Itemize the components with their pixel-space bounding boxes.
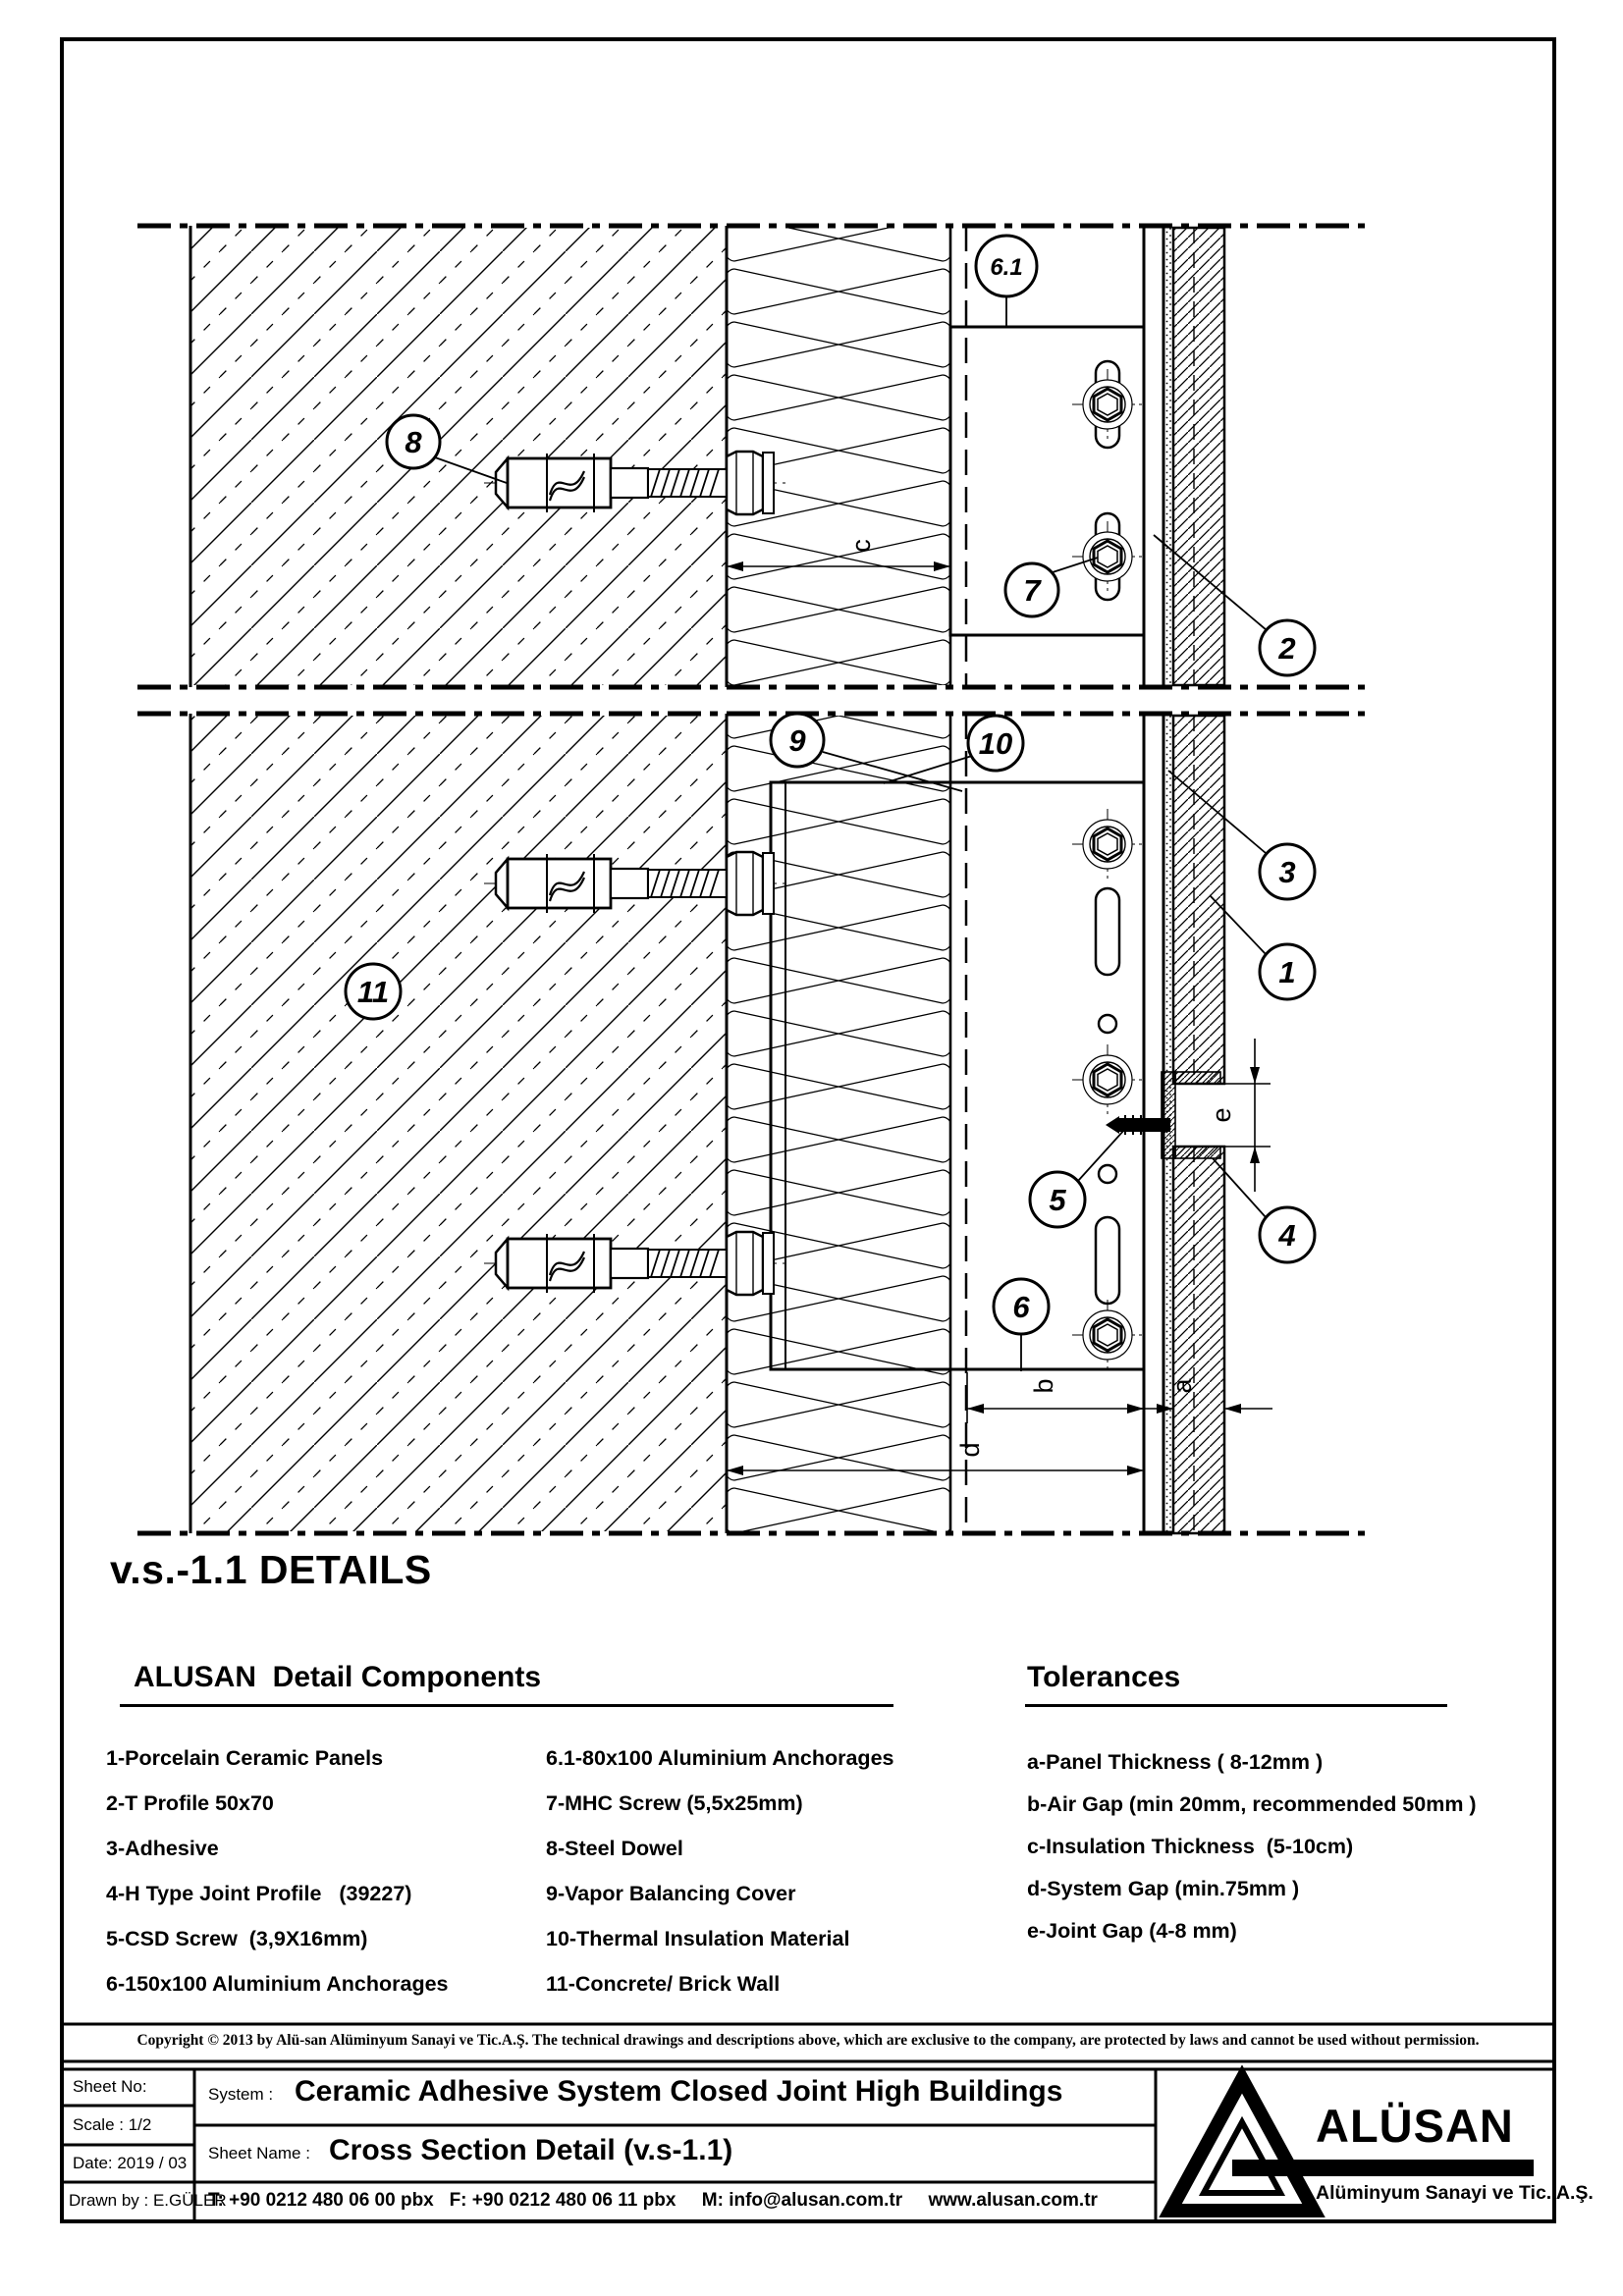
component-item: 9-Vapor Balancing Cover	[546, 1871, 893, 1916]
callout-4: 4	[1277, 1218, 1295, 1253]
component-item: 2-T Profile 50x70	[106, 1781, 449, 1826]
sheet-name-label: Sheet Name :	[208, 2144, 310, 2163]
callout-10: 10	[979, 726, 1012, 761]
svg-text:e: e	[1207, 1107, 1236, 1122]
components-underline	[120, 1704, 893, 1707]
tolerances-underline	[1025, 1704, 1447, 1707]
component-item: 7-MHC Screw (5,5x25mm)	[546, 1781, 893, 1826]
component-item: 1-Porcelain Ceramic Panels	[106, 1735, 449, 1781]
callout-3: 3	[1278, 855, 1295, 889]
components-title: ALUSAN Detail Components	[134, 1661, 541, 1694]
component-item: 4-H Type Joint Profile (39227)	[106, 1871, 449, 1916]
tolerance-item: c-Insulation Thickness (5-10cm)	[1027, 1826, 1477, 1868]
tolerances-title: Tolerances	[1027, 1661, 1180, 1694]
callout-11: 11	[357, 975, 389, 1009]
ceramic-panel	[1173, 228, 1224, 1533]
svg-text:a: a	[1167, 1378, 1197, 1394]
svg-text:b: b	[1029, 1378, 1058, 1393]
components-column-2: 6.1-80x100 Aluminium Anchorages 7-MHC Sc…	[546, 1735, 893, 2006]
callout-6: 6	[1012, 1290, 1030, 1324]
callout-7: 7	[1023, 573, 1042, 608]
svg-text:d: d	[955, 1442, 985, 1457]
callout-2: 2	[1277, 631, 1295, 666]
tolerance-item: d-System Gap (min.75mm )	[1027, 1868, 1477, 1910]
tolerances-list: a-Panel Thickness ( 8-12mm ) b-Air Gap (…	[1027, 1741, 1477, 1952]
drawn-by-value: Drawn by : E.GÜLER	[69, 2191, 227, 2211]
sheet-name-value: Cross Section Detail (v.s-1.1)	[329, 2134, 732, 2167]
dimension-b: b	[967, 1372, 1144, 1423]
callout-5: 5	[1049, 1183, 1066, 1217]
adhesive-layer	[1164, 228, 1173, 1531]
callout-6.1: 6.1	[990, 254, 1022, 281]
tolerance-item: a-Panel Thickness ( 8-12mm )	[1027, 1741, 1477, 1784]
component-item: 10-Thermal Insulation Material	[546, 1916, 893, 1961]
tolerance-item: b-Air Gap (min 20mm, recommended 50mm )	[1027, 1784, 1477, 1826]
tolerance-item: e-Joint Gap (4-8 mm)	[1027, 1910, 1477, 1952]
details-heading: v.s.-1.1 DETAILS	[110, 1547, 432, 1593]
t-profile	[1144, 226, 1163, 1533]
csd-screw	[1106, 1115, 1170, 1135]
components-column-1: 1-Porcelain Ceramic Panels 2-T Profile 5…	[106, 1735, 449, 2006]
callout-9: 9	[788, 723, 806, 758]
callout-8: 8	[405, 425, 422, 459]
component-item: 3-Adhesive	[106, 1826, 449, 1871]
component-item: 6.1-80x100 Aluminium Anchorages	[546, 1735, 893, 1781]
copyright-notice: Copyright © 2013 by Alü-san Alüminyum Sa…	[62, 2032, 1554, 2050]
drawing-sheet: c e b a d	[0, 0, 1623, 2296]
callout-1: 1	[1278, 955, 1295, 989]
system-value: Ceramic Adhesive System Closed Joint Hig…	[295, 2075, 1062, 2109]
sheet-no-label: Sheet No:	[73, 2077, 147, 2097]
component-item: 11-Concrete/ Brick Wall	[546, 1961, 893, 2006]
component-item: 5-CSD Screw (3,9X16mm)	[106, 1916, 449, 1961]
component-item: 8-Steel Dowel	[546, 1826, 893, 1871]
scale-value: Scale : 1/2	[73, 2115, 151, 2135]
svg-text:c: c	[846, 539, 876, 553]
alusan-logo-subtext: Alüminyum Sanayi ve Tic. A.Ş.	[1316, 2182, 1594, 2205]
component-item: 6-150x100 Aluminium Anchorages	[106, 1961, 449, 2006]
logo-underline-bar	[1232, 2160, 1534, 2176]
system-label: System :	[208, 2085, 273, 2105]
contact-info: T: +90 0212 480 06 00 pbx F: +90 0212 48…	[208, 2190, 1098, 2212]
date-value: Date: 2019 / 03	[73, 2154, 187, 2173]
alusan-logo-text: ALÜSAN	[1316, 2099, 1514, 2153]
